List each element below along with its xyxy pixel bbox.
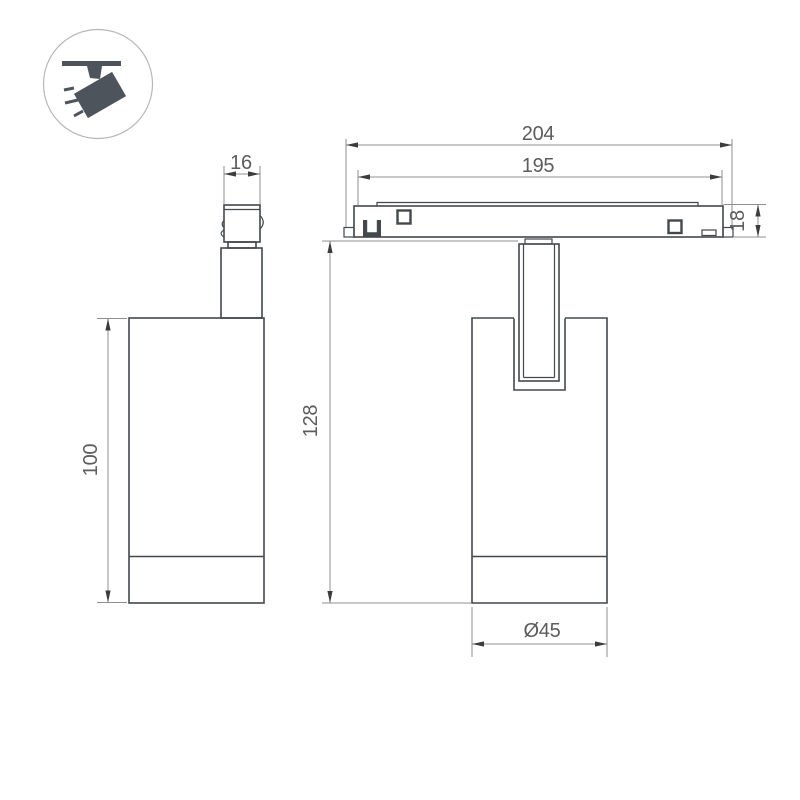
arrow-down-icon (105, 591, 110, 603)
spotlight-neck (221, 248, 262, 318)
spotlight-body-front (472, 318, 607, 603)
dim-overall-height: 128 (300, 241, 518, 603)
rail-left-tab (344, 228, 354, 238)
dim-adapter-width: 16 (224, 152, 260, 204)
pivot-stem (514, 239, 565, 390)
dim-label: 195 (522, 155, 555, 177)
technical-drawing: 16 100 (0, 0, 800, 800)
arrow-up-icon (327, 241, 332, 253)
rail-right-window (669, 221, 682, 234)
arrow-right-icon (720, 142, 732, 147)
dim-body-diameter: Ø45 (472, 607, 607, 657)
front-view: 204 195 18 (300, 123, 766, 657)
dim-label: 18 (727, 210, 749, 232)
dim-label: Ø45 (524, 620, 561, 642)
arrow-up-icon (755, 205, 760, 217)
dim-track-height: 18 (724, 205, 767, 238)
rail-slot (702, 230, 716, 236)
arrow-right-icon (710, 174, 722, 179)
rail-contact-clip (363, 220, 381, 237)
drawing-canvas: 16 100 (0, 0, 800, 800)
dim-label: 100 (80, 444, 102, 477)
adapter-block (224, 205, 260, 242)
dim-track-length: 195 (358, 155, 722, 205)
side-view: 16 100 (80, 152, 264, 603)
adapter-stub (228, 242, 256, 248)
arrow-down-icon (755, 225, 760, 237)
dim-label: 128 (300, 405, 322, 438)
dim-label: 16 (230, 152, 252, 174)
dim-label: 204 (522, 123, 555, 145)
rail-left-window (398, 211, 411, 224)
track-spotlight-icon (44, 30, 153, 139)
arrow-up-icon (105, 319, 110, 331)
track-adapter (221, 205, 263, 248)
arrow-left-icon (346, 142, 358, 147)
spotlight-body (129, 318, 264, 603)
arrow-left-icon (358, 174, 370, 179)
stem-outer (519, 244, 559, 381)
track-rail (344, 203, 733, 238)
arrow-down-icon (327, 591, 332, 603)
arrow-left-icon (472, 641, 484, 646)
dim-body-height: 100 (80, 319, 127, 603)
icon-ceiling-bar (62, 61, 121, 66)
arrow-right-icon (595, 641, 607, 646)
yoke-slot (514, 319, 565, 391)
